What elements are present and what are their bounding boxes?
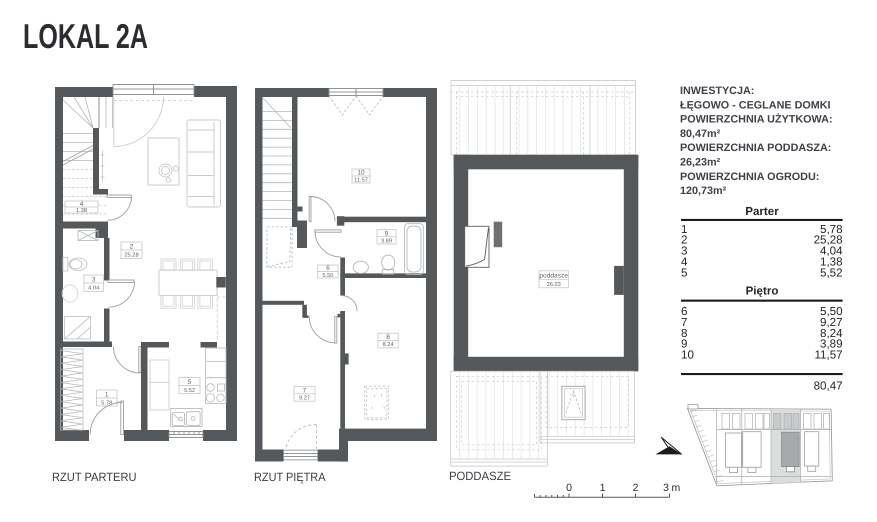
svg-text:5.50: 5.50 xyxy=(322,273,333,279)
svg-text:3: 3 xyxy=(663,482,669,494)
svg-text:LOKAL 2A: LOKAL 2A xyxy=(23,18,148,56)
svg-text:poddasze: poddasze xyxy=(539,272,568,279)
svg-text:1: 1 xyxy=(600,482,606,494)
svg-text:Piętro: Piętro xyxy=(746,285,779,298)
svg-text:ŁĘGOWO - CEGLANE DOMKI: ŁĘGOWO - CEGLANE DOMKI xyxy=(680,99,831,111)
svg-text:6: 6 xyxy=(326,265,330,272)
svg-text:POWIERZCHNIA OGRODU:: POWIERZCHNIA OGRODU: xyxy=(680,171,819,183)
svg-text:POWIERZCHNIA UŻYTKOWA:: POWIERZCHNIA UŻYTKOWA: xyxy=(680,113,833,126)
svg-text:25.28: 25.28 xyxy=(124,253,138,259)
svg-text:26.23: 26.23 xyxy=(547,282,561,288)
svg-text:11,57: 11,57 xyxy=(814,349,842,362)
svg-text:9.27: 9.27 xyxy=(299,396,310,402)
svg-text:5.52: 5.52 xyxy=(184,388,195,394)
svg-text:8.24: 8.24 xyxy=(383,342,394,348)
svg-text:26,23m²: 26,23m² xyxy=(680,157,721,169)
svg-text:5: 5 xyxy=(188,379,192,386)
svg-text:5.78: 5.78 xyxy=(101,401,112,407)
svg-text:Parter: Parter xyxy=(745,205,779,218)
svg-text:RZUT PARTERU: RZUT PARTERU xyxy=(52,470,137,484)
svg-text:2: 2 xyxy=(130,244,134,251)
svg-text:RZUT PIĘTRA: RZUT PIĘTRA xyxy=(254,470,326,484)
svg-text:0: 0 xyxy=(566,482,572,494)
svg-text:PODDASZE: PODDASZE xyxy=(449,469,511,483)
svg-text:120,73m²: 120,73m² xyxy=(680,185,727,197)
svg-text:10: 10 xyxy=(357,170,365,177)
svg-text:10: 10 xyxy=(681,349,694,362)
svg-text:4: 4 xyxy=(80,201,84,208)
svg-text:5: 5 xyxy=(681,266,687,279)
svg-text:m: m xyxy=(672,482,681,494)
svg-text:INWESTYCJA:: INWESTYCJA: xyxy=(680,85,754,97)
svg-text:80,47m²: 80,47m² xyxy=(680,128,721,140)
svg-text:1.38: 1.38 xyxy=(76,208,87,214)
svg-text:3: 3 xyxy=(92,277,96,284)
svg-text:4.04: 4.04 xyxy=(88,286,99,292)
svg-text:11.57: 11.57 xyxy=(354,178,368,184)
svg-text:1: 1 xyxy=(105,392,109,399)
svg-text:2: 2 xyxy=(633,482,639,494)
svg-text:5,52: 5,52 xyxy=(820,266,843,279)
svg-text:7: 7 xyxy=(303,388,307,395)
svg-text:8: 8 xyxy=(386,334,390,341)
svg-text:POWIERZCHNIA PODDASZA:: POWIERZCHNIA PODDASZA: xyxy=(680,142,831,154)
svg-text:9: 9 xyxy=(385,230,389,237)
svg-text:80,47: 80,47 xyxy=(814,379,843,392)
svg-text:3.89: 3.89 xyxy=(381,238,392,244)
